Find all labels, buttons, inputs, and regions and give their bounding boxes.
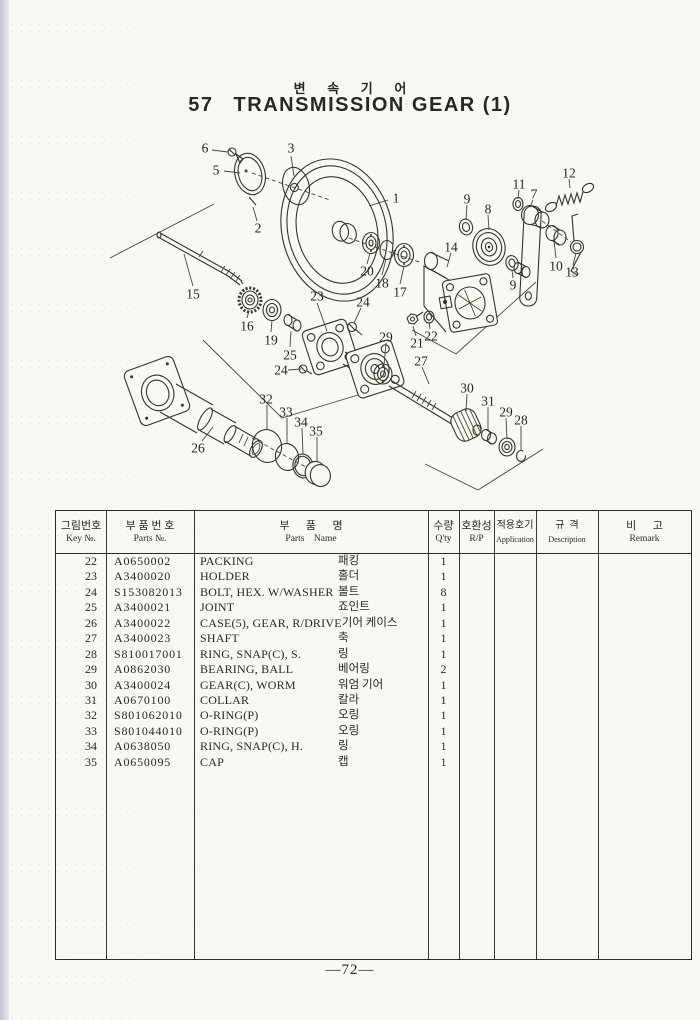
cell-rp (459, 739, 494, 754)
cell-rp (459, 616, 494, 631)
header-part-no: 부 품 번 호 Parts №. (106, 511, 194, 553)
header-application: 적용호기 Application (494, 511, 536, 553)
table-row: 24S153082013BOLT, HEX. W/WASHER볼트8 (56, 585, 691, 600)
table-row: 34A0638050RING, SNAP(C), H.링1 (56, 739, 691, 754)
cell-key: 33 (56, 724, 106, 739)
cell-remark (598, 616, 691, 631)
callout-19: 19 (264, 333, 278, 348)
cell-rp (459, 600, 494, 615)
part-21-bolt (407, 312, 423, 324)
cell-qty: 1 (428, 600, 459, 615)
cell-qty: 1 (428, 739, 459, 754)
callout-6: 6 (202, 141, 209, 156)
table-body: 22A0650002PACKING패킹123A3400020HOLDER홀더12… (56, 554, 691, 957)
cell-parts-name: O-RING(P)오링 (194, 708, 428, 723)
cell-part-no: A0638050 (106, 739, 194, 754)
cell-qty: 8 (428, 585, 459, 600)
callout-29: 29 (499, 405, 513, 420)
header-parts-name: 부 품 명 Parts Name (194, 511, 428, 553)
callout-25: 25 (283, 348, 297, 363)
cell-description (536, 631, 598, 646)
table-row: 35A0650095CAP캡1 (56, 755, 691, 770)
cell-application (494, 708, 536, 723)
part-27-shaft (389, 381, 457, 426)
cell-description (536, 662, 598, 677)
callout-20: 20 (360, 264, 374, 279)
cell-remark (598, 693, 691, 708)
callout-5: 5 (213, 163, 220, 178)
cell-description (536, 600, 598, 615)
table-row: 25A3400021JOINT죠인트1 (56, 600, 691, 615)
callout-28: 28 (514, 413, 528, 428)
part-9-washer-upper (458, 218, 475, 237)
cell-part-no: S810017001 (106, 647, 194, 662)
cell-description (536, 693, 598, 708)
part-5-disc (230, 150, 270, 198)
cell-description (536, 724, 598, 739)
page: { "page": { "title_ko": "변 속 기 어", "titl… (0, 0, 700, 1020)
callout-21: 21 (410, 336, 424, 351)
header-description: 규 격 Description (536, 511, 598, 553)
cell-key: 34 (56, 739, 106, 754)
table-row: 32S801062010O-RING(P)오링1 (56, 708, 691, 723)
cell-key: 27 (56, 631, 106, 646)
cell-qty: 1 (428, 647, 459, 662)
header-rp: 호환성 R/P (459, 511, 494, 553)
callout-30: 30 (460, 381, 474, 396)
cell-key: 26 (56, 616, 106, 631)
cell-remark (598, 724, 691, 739)
callout-27: 27 (414, 354, 428, 369)
cell-remark (598, 662, 691, 677)
callout-11: 11 (513, 177, 526, 192)
part-15-shaft (157, 232, 243, 285)
cell-qty: 1 (428, 693, 459, 708)
part-22-packing-ring (424, 311, 434, 323)
part-31-collar (482, 430, 497, 445)
cell-description (536, 554, 598, 569)
cell-remark (598, 708, 691, 723)
table-row: 29A0862030BEARING, BALL베어링2 (56, 662, 691, 677)
cell-parts-name: PACKING패킹 (194, 554, 428, 569)
cell-application (494, 724, 536, 739)
cell-application (494, 569, 536, 584)
callout-17: 17 (393, 285, 407, 300)
cell-rp (459, 569, 494, 584)
cell-key: 31 (56, 693, 106, 708)
cell-remark (598, 569, 691, 584)
table-row: 22A0650002PACKING패킹1 (56, 554, 691, 569)
cell-key: 25 (56, 600, 106, 615)
callout-32: 32 (259, 392, 273, 407)
cell-rp (459, 693, 494, 708)
callout-34: 34 (294, 415, 308, 430)
cell-application (494, 616, 536, 631)
cell-part-no: S801044010 (106, 724, 194, 739)
cell-parts-name: RING, SNAP(C), S.링 (194, 647, 428, 662)
cell-remark (598, 739, 691, 754)
table-row: 28S810017001RING, SNAP(C), S.링1 (56, 647, 691, 662)
diagram-svg: 6532115161925232424201817149891171210132… (0, 0, 700, 505)
parts-table: 그림번호 Key №. 부 품 번 호 Parts №. 부 품 명 Parts… (55, 510, 692, 960)
part-10-roller (546, 226, 566, 246)
cell-description (536, 616, 598, 631)
cell-remark (598, 678, 691, 693)
cell-qty: 1 (428, 631, 459, 646)
part-16-gear (239, 288, 261, 312)
cell-key: 29 (56, 662, 106, 677)
cell-part-no: A3400024 (106, 678, 194, 693)
cell-application (494, 585, 536, 600)
cell-application (494, 739, 536, 754)
part-35-cap (303, 459, 332, 490)
table-row: 30A3400024GEAR(C), WORM워엄 기어1 (56, 678, 691, 693)
cell-description (536, 569, 598, 584)
cell-qty: 1 (428, 678, 459, 693)
callout-22: 22 (424, 329, 438, 344)
cell-rp (459, 554, 494, 569)
callout-14: 14 (444, 240, 458, 255)
table-row: 26A3400022CASE(5), GEAR, R/DRIVE기어 케이스1 (56, 616, 691, 631)
cell-rp (459, 585, 494, 600)
cell-part-no: A0650095 (106, 755, 194, 770)
callout-31: 31 (481, 394, 495, 409)
callout-24: 24 (356, 295, 370, 310)
axis-lines (252, 173, 571, 480)
cell-parts-name: GEAR(C), WORM워엄 기어 (194, 678, 428, 693)
cell-key: 24 (56, 585, 106, 600)
cell-qty: 2 (428, 662, 459, 677)
cell-rp (459, 647, 494, 662)
cell-rp (459, 724, 494, 739)
cell-part-no: A3400020 (106, 569, 194, 584)
cell-parts-name: O-RING(P)오링 (194, 724, 428, 739)
cell-key: 32 (56, 708, 106, 723)
cell-description (536, 755, 598, 770)
cell-parts-name: CAP캡 (194, 755, 428, 770)
cell-description (536, 678, 598, 693)
callout-3: 3 (288, 141, 295, 156)
header-qty: 수량 Q'ty (428, 511, 459, 553)
cell-remark (598, 554, 691, 569)
cell-part-no: A0670100 (106, 693, 194, 708)
callout-13: 13 (565, 265, 579, 280)
cell-remark (598, 585, 691, 600)
callout-18: 18 (375, 276, 389, 291)
cell-application (494, 678, 536, 693)
callout-23: 23 (310, 289, 324, 304)
cell-application (494, 662, 536, 677)
callout-26: 26 (191, 441, 205, 456)
callout-9: 9 (464, 192, 471, 207)
part-24-bolt-lower (299, 365, 312, 374)
cell-key: 30 (56, 678, 106, 693)
callout-15: 15 (186, 287, 200, 302)
cell-key: 23 (56, 569, 106, 584)
callout-8: 8 (485, 202, 492, 217)
part-33-o-ring (273, 441, 301, 472)
part-11-ring (513, 198, 523, 211)
part-20-bearing (363, 233, 380, 254)
callout-7: 7 (531, 187, 538, 202)
header-remark: 비 고 Remark (598, 511, 691, 553)
cell-rp (459, 755, 494, 770)
cell-key: 28 (56, 647, 106, 662)
cell-application (494, 693, 536, 708)
cell-part-no: A3400023 (106, 631, 194, 646)
cell-remark (598, 600, 691, 615)
cell-parts-name: BOLT, HEX. W/WASHER볼트 (194, 585, 428, 600)
part-7-lever (514, 206, 549, 307)
callout-35: 35 (309, 424, 323, 439)
table-row: 23A3400020HOLDER홀더1 (56, 569, 691, 584)
cell-parts-name: CASE(5), GEAR, R/DRIVE기어 케이스 (194, 616, 428, 631)
cell-parts-name: JOINT죠인트 (194, 600, 428, 615)
callout-24: 24 (274, 363, 288, 378)
cell-part-no: S153082013 (106, 585, 194, 600)
table-row: 27A3400023SHAFT축1 (56, 631, 691, 646)
cell-parts-name: RING, SNAP(C), H.링 (194, 739, 428, 754)
callout-33: 33 (279, 405, 293, 420)
cell-qty: 1 (428, 724, 459, 739)
callout-1: 1 (393, 191, 400, 206)
cell-application (494, 631, 536, 646)
table-header: 그림번호 Key №. 부 품 번 호 Parts №. 부 품 명 Parts… (56, 511, 691, 554)
cell-parts-name: HOLDER홀더 (194, 569, 428, 584)
table-row: 31A0670100COLLAR칼라1 (56, 693, 691, 708)
callout-2: 2 (255, 221, 262, 236)
cell-description (536, 647, 598, 662)
part-29-bearing-right (499, 438, 515, 456)
cell-application (494, 755, 536, 770)
cell-remark (598, 647, 691, 662)
table-row: 33S801044010O-RING(P)오링1 (56, 724, 691, 739)
part-8-pulley (469, 225, 509, 269)
cell-description (536, 739, 598, 754)
cell-qty: 1 (428, 755, 459, 770)
cell-parts-name: COLLAR칼라 (194, 693, 428, 708)
callout-10: 10 (549, 259, 563, 274)
cell-rp (459, 708, 494, 723)
cell-key: 22 (56, 554, 106, 569)
cell-qty: 1 (428, 616, 459, 631)
cell-remark (598, 631, 691, 646)
callout-29: 29 (379, 330, 393, 345)
cell-part-no: S801062010 (106, 708, 194, 723)
cell-description (536, 708, 598, 723)
cell-parts-name: SHAFT축 (194, 631, 428, 646)
cell-rp (459, 662, 494, 677)
cell-parts-name: BEARING, BALL베어링 (194, 662, 428, 677)
cell-qty: 1 (428, 554, 459, 569)
cell-part-no: A3400021 (106, 600, 194, 615)
cell-part-no: A3400022 (106, 616, 194, 631)
cell-rp (459, 631, 494, 646)
cell-rp (459, 678, 494, 693)
part-25-joint-collar (284, 315, 301, 332)
part-19-bearing (263, 300, 281, 321)
cell-description (536, 585, 598, 600)
page-number: —72— (0, 962, 700, 979)
cell-application (494, 554, 536, 569)
callout-16: 16 (240, 319, 254, 334)
cell-part-no: A0650002 (106, 554, 194, 569)
cell-key: 35 (56, 755, 106, 770)
cell-remark (598, 755, 691, 770)
cell-application (494, 600, 536, 615)
part-2-pin (249, 197, 256, 205)
cell-part-no: A0862030 (106, 662, 194, 677)
cell-qty: 1 (428, 569, 459, 584)
part-28-snap-ring (517, 451, 526, 462)
cell-qty: 1 (428, 708, 459, 723)
callout-9: 9 (510, 278, 517, 293)
callout-12: 12 (562, 166, 576, 181)
cell-application (494, 647, 536, 662)
header-key: 그림번호 Key №. (56, 511, 106, 553)
